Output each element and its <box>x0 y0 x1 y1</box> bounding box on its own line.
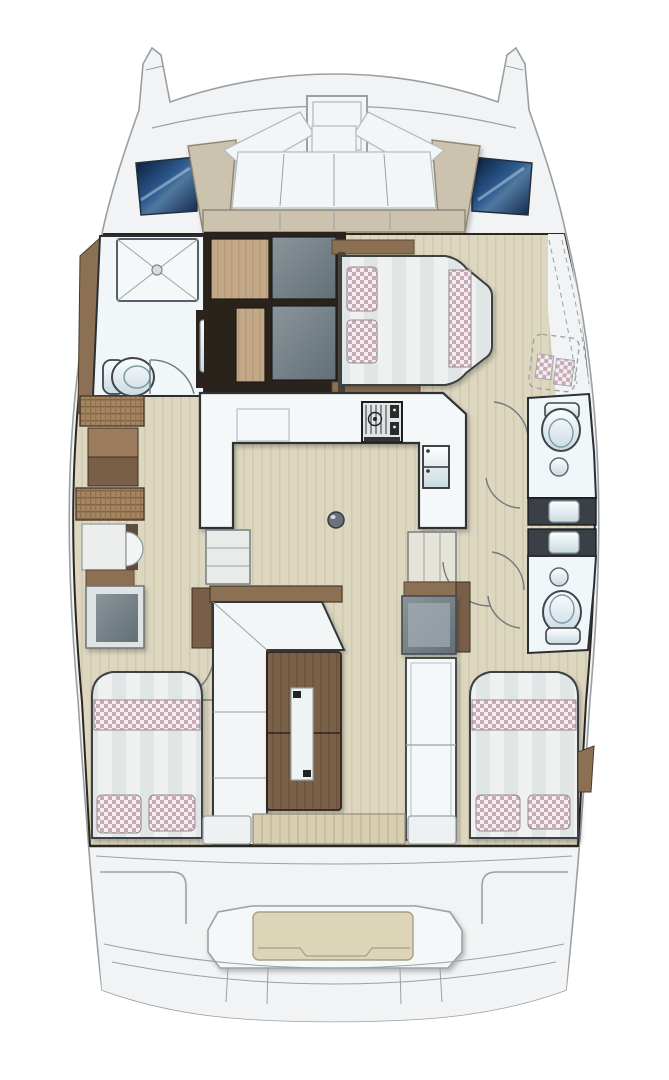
woven-locker-1 <box>80 396 144 426</box>
stove <box>362 402 402 442</box>
wardrobe-door-gray-2 <box>272 306 336 380</box>
bench-cushion <box>253 912 413 960</box>
table-post-highlight <box>330 515 335 519</box>
starboard-aft-cabin <box>470 672 594 838</box>
table-latch-1 <box>293 691 301 698</box>
threshold-step-right <box>408 816 456 844</box>
pillow-1 <box>347 267 377 311</box>
galley-sink <box>423 446 449 488</box>
hull-step-1 <box>88 428 138 457</box>
lounge-cushion-center-back <box>312 126 356 154</box>
aft-counter <box>406 658 456 840</box>
steps-to-port-hull <box>206 530 250 584</box>
desk-trim <box>86 570 134 586</box>
stbd-aft-pillow-2 <box>528 795 570 829</box>
shower-drain <box>152 265 162 275</box>
woven-locker-2 <box>76 488 144 520</box>
sink1 <box>550 458 568 476</box>
shower-tray <box>117 239 198 301</box>
toilet-port <box>103 358 154 396</box>
port-desk-top <box>96 594 138 642</box>
starboard-forward-head <box>528 394 596 498</box>
fridge-cabinet-top <box>408 603 450 647</box>
cabinet-trim <box>404 582 460 596</box>
starboard-hull-window <box>472 157 532 215</box>
helm-cushion-2 <box>553 358 574 386</box>
port-aft-blanket-band <box>94 700 200 730</box>
stbd-aft-blanket-band <box>472 700 576 730</box>
cabinet-side-trim <box>456 582 470 652</box>
port-aft-pillow-1 <box>97 795 141 833</box>
wardrobe-door-gray-1 <box>272 237 336 299</box>
starboard-aft-head <box>528 556 596 653</box>
sofa-side-cabinet <box>192 588 212 648</box>
threshold-step-left <box>203 816 251 844</box>
saloon <box>192 586 344 845</box>
sink2 <box>550 568 568 586</box>
cockpit <box>90 846 578 1022</box>
vanity-basin-2 <box>549 532 579 553</box>
pillow-2 <box>347 320 377 363</box>
saloon-door-threshold <box>203 814 456 844</box>
hull-step-2 <box>88 457 138 486</box>
wardrobe-door-wood-1 <box>211 239 269 299</box>
transom-bench <box>208 906 462 968</box>
stbd-hull-trim <box>578 746 594 792</box>
table-inlay <box>291 688 313 780</box>
table-post <box>328 512 344 528</box>
saloon-table <box>267 652 341 810</box>
port-hull-window <box>136 157 197 215</box>
stbd-aft-pillow-1 <box>476 795 520 831</box>
teak-threshold <box>253 814 405 844</box>
catamaran-floorplan: Catamaran interior layout — top-down flo… <box>0 0 669 1080</box>
steps-to-starboard-hull <box>408 532 456 582</box>
floor-plan-canvas: Catamaran interior layout — top-down flo… <box>0 0 669 1080</box>
vanity-basin-1 <box>549 501 579 522</box>
port-aft-cabin <box>92 672 202 838</box>
berth-trim-top <box>332 240 414 254</box>
table-latch-2 <box>303 770 311 777</box>
toilet2-tank <box>546 628 580 644</box>
toilet2-bowl <box>543 591 581 633</box>
bed-runner <box>449 270 471 367</box>
wardrobe-door-wood-2 <box>236 308 265 382</box>
toilet1-bowl <box>542 409 580 451</box>
helm-cushion-1 <box>535 354 554 380</box>
hull-cabinet <box>82 524 126 570</box>
sofa-back-trim <box>210 586 342 602</box>
wardrobe-cabinets <box>204 232 346 392</box>
port-aft-pillow-2 <box>149 795 195 831</box>
